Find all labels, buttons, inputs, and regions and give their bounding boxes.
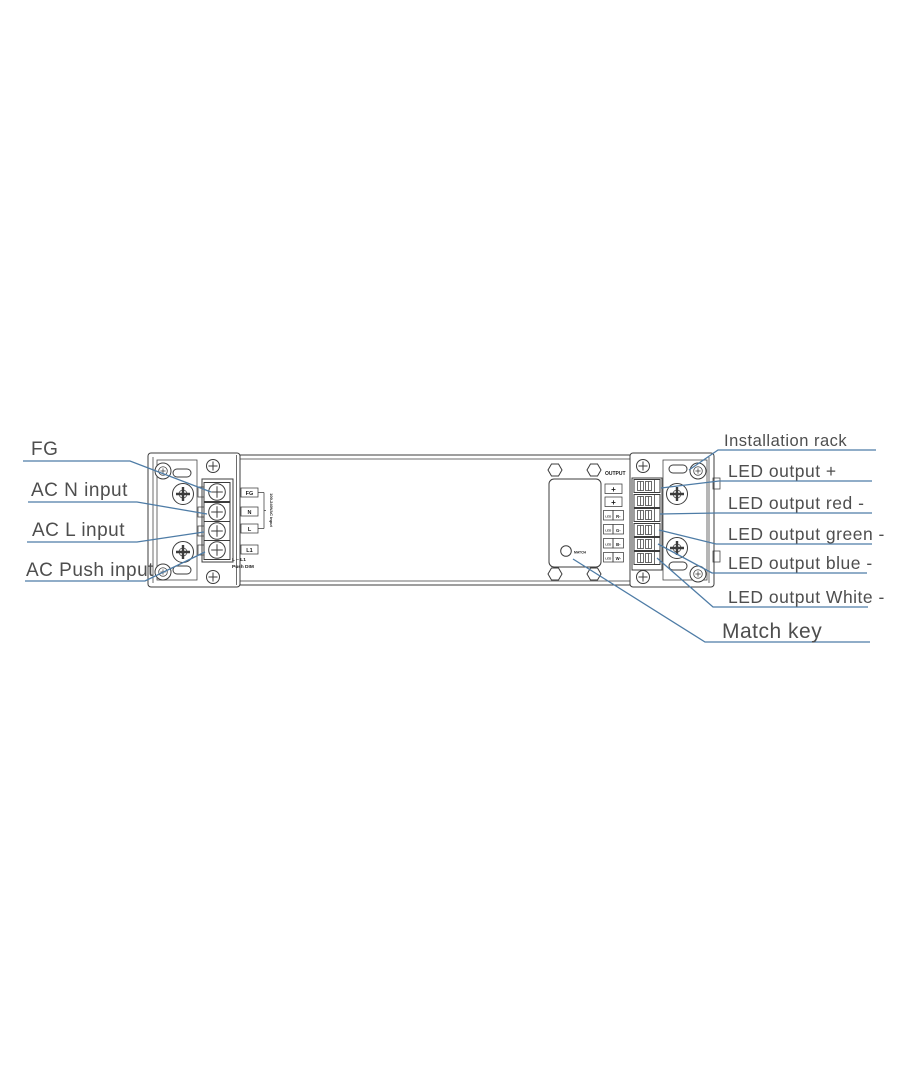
terminal-led-plus-1: [634, 480, 660, 493]
label-led-output-blue: LED output blue -: [728, 553, 873, 573]
output-label-b-minus: B-: [616, 542, 621, 547]
oval-slot-icon: [173, 566, 191, 574]
match-button-label: MATCH: [574, 551, 587, 555]
callout-line-led-plus: [661, 481, 872, 488]
device-body: [237, 455, 631, 585]
hex-hole-icon: [548, 568, 562, 580]
label-installation-rack: Installation rack: [724, 432, 847, 450]
terminal-n: [198, 503, 230, 522]
phillips-screw-icon: [207, 571, 220, 584]
label-match-key: Match key: [722, 620, 822, 643]
phillips-screw-icon: [637, 460, 650, 473]
ac-input-note: 100-240VAC input: [269, 493, 274, 527]
label-led-output-green: LED output green -: [728, 524, 885, 544]
oval-slot-icon: [669, 465, 687, 473]
led-output-terminal-block: [632, 460, 662, 584]
terminal-l1: [198, 541, 230, 560]
output-label-plus-2: +: [611, 498, 616, 507]
terminal-led-green: [634, 524, 660, 537]
phillips-screw-icon: [173, 484, 194, 505]
input-label-l: L: [248, 527, 252, 533]
label-ac-l-input: AC L input: [32, 520, 125, 541]
terminal-led-red: [634, 509, 660, 522]
label-fg: FG: [31, 439, 58, 460]
output-label-g-minus: G-: [616, 528, 621, 533]
hex-hole-icon: [587, 464, 601, 476]
phillips-screw-icon: [637, 571, 650, 584]
terminal-fg: [198, 483, 230, 502]
wiring-diagram: FG N L L1 100-240VAC input L ~ L1 Push D…: [0, 0, 910, 1080]
label-ac-push-input: AC Push input: [26, 560, 154, 581]
phillips-screw-icon: [207, 460, 220, 473]
callout-labels: FG AC N input AC L input AC Push input I…: [26, 432, 885, 643]
output-header: OUTPUT: [605, 471, 626, 477]
label-ac-n-input: AC N input: [31, 480, 128, 501]
input-label-l1: L1: [246, 548, 252, 554]
label-led-output-red: LED output red -: [728, 493, 864, 513]
terminal-led-blue: [634, 538, 660, 551]
output-label-w-minus: W-: [616, 556, 622, 561]
ac-input-terminal-block: [198, 460, 233, 584]
oval-slot-icon: [669, 562, 687, 570]
push-dim-note-symbols: L ~ L1: [232, 557, 246, 563]
terminal-led-plus-2: [634, 495, 660, 508]
output-label-column: OUTPUT + + LED R- LED G- LED B- LED W-: [604, 471, 626, 562]
label-led-output-plus: LED output +: [728, 461, 837, 481]
input-label-column: FG N L L1 100-240VAC input L ~ L1 Push D…: [232, 488, 274, 570]
output-label-r-minus: R-: [616, 514, 621, 519]
oval-slot-icon: [173, 469, 191, 477]
match-key-button: [561, 546, 572, 557]
output-label-plus-1: +: [611, 485, 616, 494]
input-label-n: N: [248, 510, 252, 516]
output-label-led-g: LED: [605, 529, 611, 533]
label-led-output-white: LED output White -: [728, 587, 885, 607]
terminal-led-white: [634, 552, 660, 565]
terminal-l: [198, 522, 230, 541]
input-label-fg: FG: [246, 491, 254, 497]
push-dim-note: Push DIM: [232, 564, 254, 570]
phillips-screw-icon: [667, 538, 688, 559]
output-label-led-w: LED: [605, 557, 611, 561]
led-driver-device: FG N L L1 100-240VAC input L ~ L1 Push D…: [148, 453, 720, 587]
callout-line-led-red: [660, 513, 872, 514]
label-plate: MATCH: [548, 464, 601, 580]
ring-screw-icon: [690, 463, 706, 479]
hex-hole-icon: [548, 464, 562, 476]
output-label-led-b: LED: [605, 543, 611, 547]
page: FG N L L1 100-240VAC input L ~ L1 Push D…: [0, 0, 910, 1080]
output-label-led-r: LED: [605, 515, 611, 519]
